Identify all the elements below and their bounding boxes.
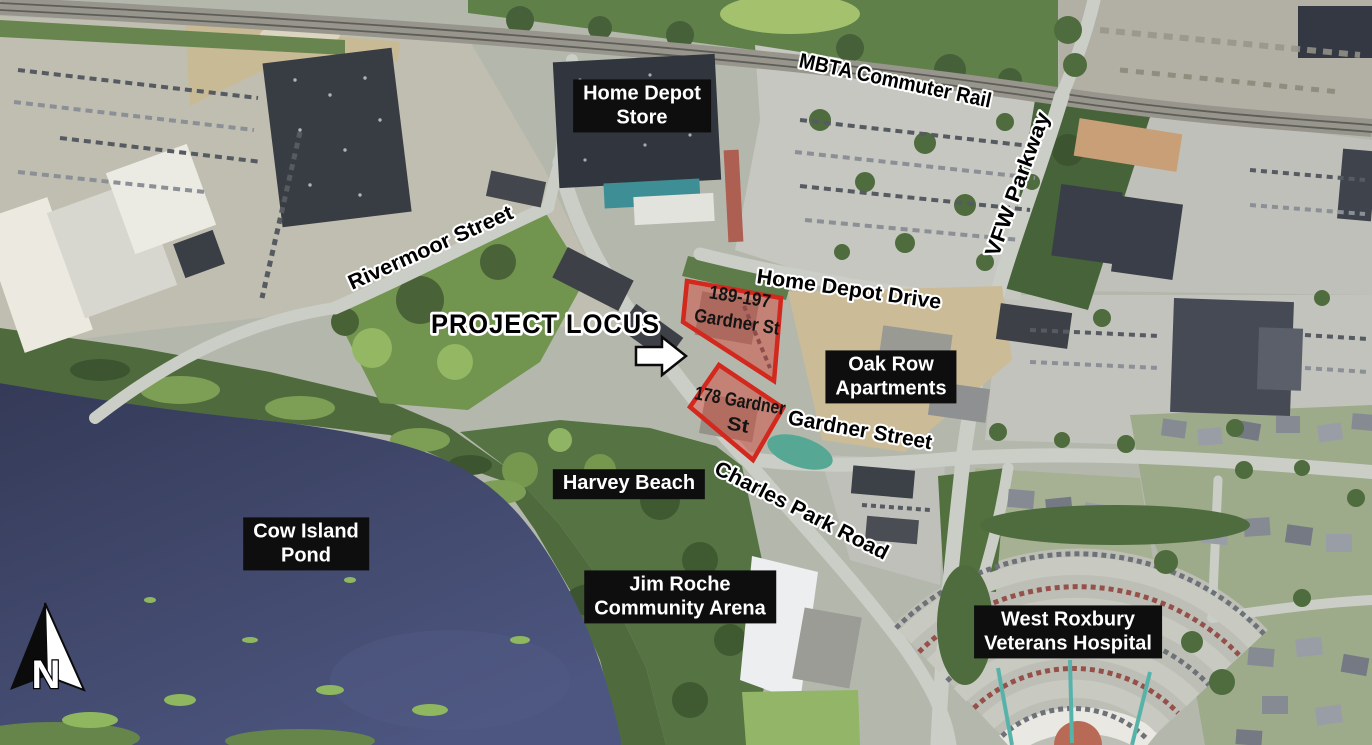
label-oak-row-line2: Apartments bbox=[835, 377, 946, 401]
label-oak-row-line1: Oak Row bbox=[835, 353, 946, 377]
label-west-roxbury-line1: West Roxbury bbox=[984, 608, 1152, 632]
label-west-roxbury-line2: Veterans Hospital bbox=[984, 632, 1152, 656]
label-harvey-beach-line1: Harvey Beach bbox=[563, 472, 695, 496]
north-label: N bbox=[32, 653, 61, 697]
label-cow-island-line1: Cow Island bbox=[253, 520, 359, 544]
parcel-178-label-line2: St bbox=[725, 413, 751, 438]
label-harvey-beach: Harvey Beach bbox=[553, 469, 705, 499]
label-west-roxbury-va: West Roxbury Veterans Hospital bbox=[974, 605, 1162, 658]
label-home-depot-store-line1: Home Depot bbox=[583, 82, 701, 106]
label-oak-row-apartments: Oak Row Apartments bbox=[825, 350, 956, 403]
label-jim-roche-arena: Jim Roche Community Arena bbox=[584, 570, 776, 623]
label-jim-roche-line2: Community Arena bbox=[594, 597, 766, 621]
locus-map: 189-197 Gardner St 178 Gardner St MBTA C… bbox=[0, 0, 1372, 745]
project-locus-label: PROJECT LOCUS bbox=[431, 309, 660, 339]
label-jim-roche-line1: Jim Roche bbox=[594, 573, 766, 597]
label-cow-island-line2: Pond bbox=[253, 544, 359, 568]
label-home-depot-store-line2: Store bbox=[583, 106, 701, 130]
label-cow-island-pond: Cow Island Pond bbox=[243, 517, 369, 570]
label-home-depot-store: Home Depot Store bbox=[573, 79, 711, 132]
